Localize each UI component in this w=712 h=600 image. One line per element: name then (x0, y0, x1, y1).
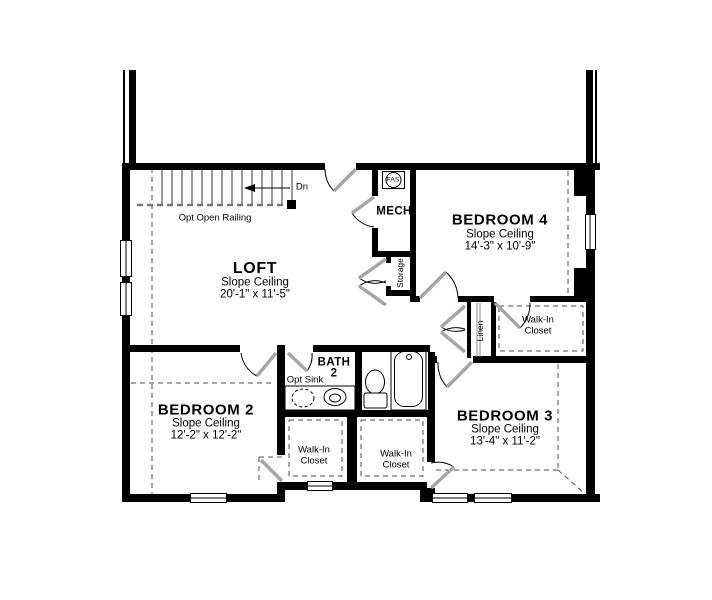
door-bedroom3 (438, 362, 472, 387)
window-left-2 (121, 282, 132, 316)
wall-stub-left (129, 70, 136, 165)
shelf-outline-closet-bedroom4 (499, 306, 583, 351)
door-storage-upper (359, 259, 386, 283)
floor-plan: LOFT Slope Ceiling 20'-1" x 11'-5" BEDRO… (0, 0, 712, 600)
wall-bedroom2-right-a (277, 352, 285, 455)
wall-storage-top (372, 251, 416, 257)
fas-unit (383, 172, 405, 189)
wall-jog-right (420, 482, 427, 502)
wall-loft-bedroom2-b (277, 345, 285, 352)
wall-linen-left (467, 302, 471, 358)
door-mech (352, 197, 374, 227)
wall-bedroom4-bottom-a (410, 296, 420, 302)
optional-sink (292, 389, 314, 407)
toilet-tank (364, 393, 387, 408)
door-closet-bedroom3 (431, 462, 454, 488)
door-bedroom4 (420, 272, 458, 298)
window-bottom-closet (307, 482, 333, 491)
wall-top-left (122, 163, 325, 170)
wall-bath-bottom (277, 410, 435, 417)
wall-bath-top (313, 345, 430, 352)
door-closet-bedroom2-optional (261, 460, 282, 481)
wall-closet2-right-a (427, 417, 435, 462)
wall-bedroom4-bottom-b (458, 296, 494, 302)
wall-storage-left-a (386, 257, 391, 263)
wall-right (586, 163, 595, 502)
slope-ceiling-lines (131, 168, 584, 496)
wall-bath-mid (355, 345, 362, 410)
wall-top-right (356, 163, 600, 170)
wall-stub-left-thin (123, 70, 125, 165)
door-bedroom2 (241, 353, 276, 376)
wall-bedroom2-right-b (277, 485, 285, 502)
stairs-down-arrow (244, 184, 290, 192)
wall-stub-right (586, 70, 593, 165)
wall-right-notch-1 (574, 166, 586, 196)
wall-bedroom3-top-a (430, 356, 437, 363)
toilet-bowl (366, 370, 385, 394)
wall-left (122, 163, 130, 502)
window-bottom-bedroom3-2 (474, 494, 512, 503)
door-top-attic (325, 169, 356, 191)
shelf-outline-closet-bedroom3 (361, 420, 423, 476)
door-storage-lower (359, 281, 386, 305)
window-right-bedroom4 (586, 214, 596, 250)
linen-shelf-lines (477, 303, 480, 357)
wall-loft-bedroom2-a (122, 345, 240, 352)
wall-mech-left-a (372, 170, 378, 196)
tub-faucet (407, 355, 412, 360)
window-bottom-bedroom3-1 (432, 494, 468, 503)
sink-bowl (330, 394, 341, 402)
wall-linen-right (491, 302, 496, 358)
wall-between-closets (347, 417, 357, 485)
slope-line-bedroom3-diag (558, 470, 584, 493)
door-closet-bedroom4 (495, 303, 530, 328)
wall-bedroom3-top-b (473, 356, 595, 363)
window-left-1 (121, 240, 132, 277)
shelf-outline-closet-bedroom2 (289, 420, 342, 476)
wall-storage-bottom (386, 290, 416, 296)
wall-stub-right-thin (595, 70, 597, 165)
floor-plan-drawing (0, 0, 712, 600)
window-bottom-bedroom2 (190, 494, 227, 503)
door-bath2 (288, 353, 312, 371)
wall-right-notch-2 (574, 268, 586, 300)
wall-bedroom4-bottom-c (530, 296, 595, 302)
wall-mech-right (410, 170, 416, 302)
